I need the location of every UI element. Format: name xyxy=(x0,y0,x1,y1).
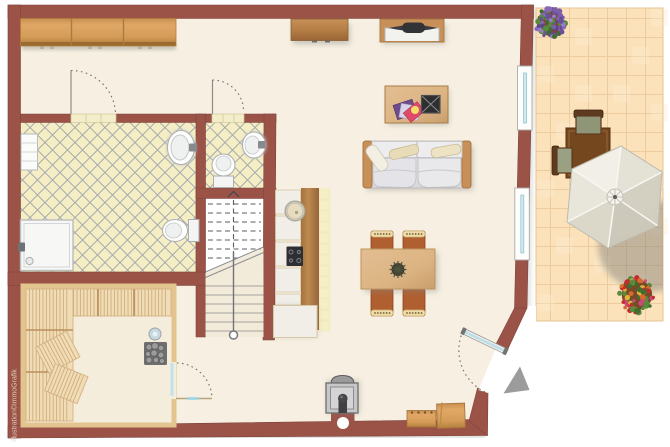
svg-text:Illustration©immoGrafik: Illustration©immoGrafik xyxy=(11,369,19,442)
